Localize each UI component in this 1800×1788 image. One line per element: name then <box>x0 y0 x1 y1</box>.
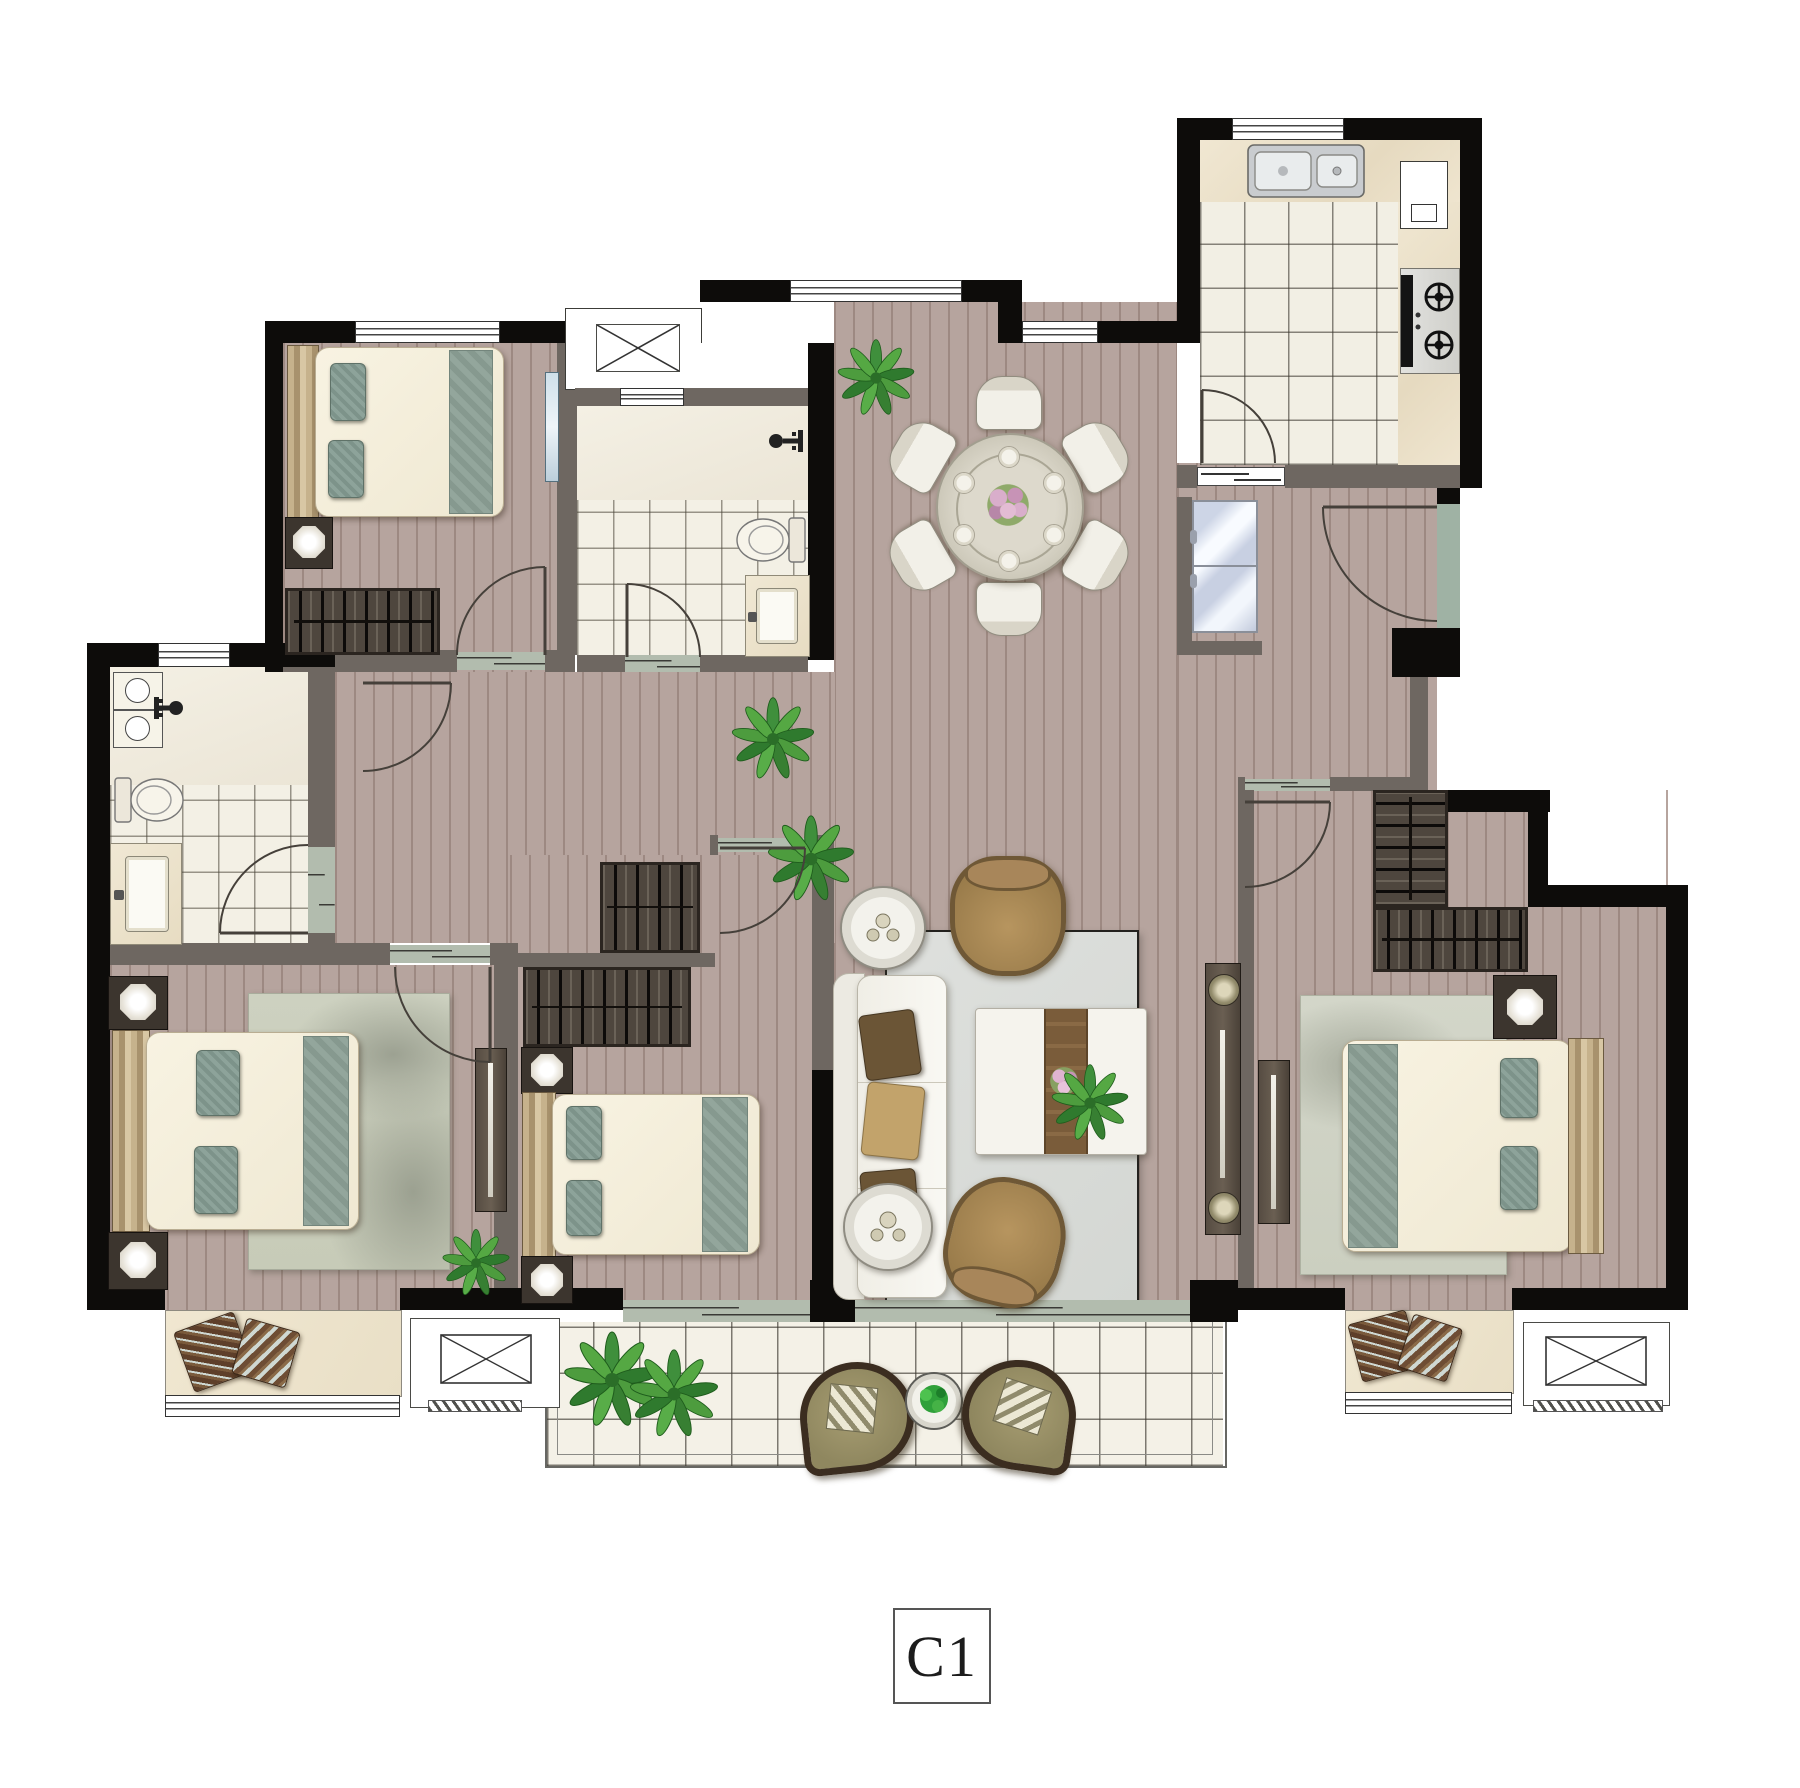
kitchen-sliding-door <box>1197 467 1285 486</box>
kitchen-double-sink <box>1247 144 1365 198</box>
bathroom-left-shower-faucet <box>150 695 190 721</box>
bed-pillow <box>1500 1146 1538 1210</box>
plant-bedroom-bottom-left <box>441 1228 511 1298</box>
bathroom-left-window <box>158 643 230 667</box>
bedroom-right-dresser <box>1258 1060 1290 1224</box>
plant-balcony <box>628 1348 720 1440</box>
wall <box>684 388 808 406</box>
floor-plan-canvas: C1 <box>0 0 1800 1788</box>
bed-headboard <box>112 1030 150 1232</box>
ac-platform-left-grille <box>428 1400 522 1412</box>
plant-hallway <box>730 696 816 782</box>
wall <box>1512 1288 1688 1310</box>
wall <box>575 388 620 406</box>
ac-platform-right <box>1523 1322 1670 1406</box>
armchair <box>950 856 1066 976</box>
nightstand <box>1493 975 1557 1039</box>
wall <box>1437 488 1460 504</box>
wall <box>1238 1288 1345 1310</box>
bed-pillow <box>194 1146 238 1214</box>
plant-dining <box>836 338 916 418</box>
bedroom-top-left-door-threshold <box>457 652 545 670</box>
bed-pillow <box>1500 1058 1538 1118</box>
wall <box>1177 641 1262 655</box>
kitchen-window <box>1232 118 1344 140</box>
bedroom-top-left-wardrobe <box>285 588 440 655</box>
wall <box>812 1070 834 1300</box>
unit-label: C1 <box>906 1623 978 1690</box>
dining-chair <box>976 376 1042 430</box>
bedroom-right-wardrobe-horizontal <box>1373 907 1528 972</box>
wall <box>577 655 625 672</box>
bedroom-middle-balcony-slider <box>623 1300 810 1322</box>
bed-headboard <box>522 1092 556 1257</box>
dining-window <box>790 280 962 302</box>
sofa-pillow <box>860 1081 925 1161</box>
bathroom-center-toilet <box>735 513 808 567</box>
wall <box>1410 677 1428 790</box>
bed-pillow <box>566 1180 602 1236</box>
balcony-side-table <box>905 1372 963 1430</box>
bathroom-left-toilet <box>112 773 185 827</box>
bathroom-left-threshold <box>308 847 335 933</box>
wall <box>510 953 715 967</box>
gas-stove <box>1400 268 1460 374</box>
bedroom-right-door-threshold <box>1245 779 1330 791</box>
wall <box>308 667 335 847</box>
wall <box>710 835 718 855</box>
wall-mirror <box>545 372 559 482</box>
wall <box>1238 777 1245 791</box>
bed-pillow <box>196 1050 240 1116</box>
nightstand <box>521 1256 573 1304</box>
hallway-closet <box>600 862 700 953</box>
nightstand <box>108 1232 168 1290</box>
wall <box>400 1288 623 1310</box>
wall <box>265 321 355 343</box>
kitchen-wall-cabinet <box>1400 161 1448 229</box>
bed-headboard <box>1568 1038 1604 1254</box>
refrigerator <box>1192 500 1258 633</box>
wall <box>1190 1280 1238 1322</box>
bedroom-bottom-left-dresser <box>475 1048 507 1212</box>
ac-platform-left <box>410 1318 560 1408</box>
bed-foot-runner <box>702 1097 748 1252</box>
wall <box>545 650 575 672</box>
plant-living <box>766 814 856 904</box>
wall <box>1548 885 1688 907</box>
nightstand <box>521 1047 573 1094</box>
place-setting <box>998 446 1020 468</box>
vent-shaft-x-symbol <box>596 324 680 372</box>
bathroom-center-threshold <box>625 655 700 672</box>
bathroom-center-vanity <box>745 575 810 657</box>
wall <box>500 321 575 343</box>
bathroom-center-window <box>620 388 684 406</box>
plant-corridor <box>1050 1063 1130 1143</box>
bed-foot-runner <box>303 1036 349 1226</box>
bed-pillow <box>328 440 364 498</box>
bedroom-bottom-left-door-threshold <box>390 945 490 963</box>
wall <box>1666 907 1688 1310</box>
bed-foot-runner <box>1348 1044 1398 1248</box>
unit-label-box: C1 <box>893 1608 991 1704</box>
entry-threshold <box>1437 504 1460 628</box>
bathroom-left-vanity <box>110 843 182 945</box>
bathroom-center-shower-faucet <box>762 428 808 454</box>
ac-platform-right-grille <box>1533 1400 1663 1412</box>
kitchen-floor <box>1200 202 1398 465</box>
place-setting <box>953 524 975 546</box>
outside-filler <box>700 343 808 388</box>
outside-notch <box>1548 790 1666 885</box>
wall <box>87 1288 165 1310</box>
place-setting <box>1043 472 1065 494</box>
wall <box>1177 118 1200 343</box>
wall <box>1460 118 1482 488</box>
wall <box>265 321 283 672</box>
bay-window-left <box>165 1395 400 1417</box>
sofa-pillow <box>858 1008 923 1081</box>
dining-window-2 <box>1022 321 1098 343</box>
bed-pillow <box>566 1106 602 1160</box>
place-setting <box>953 472 975 494</box>
tv-console <box>1205 963 1241 1235</box>
wall <box>700 655 808 672</box>
dining-centerpiece-flowers <box>984 481 1032 529</box>
wall <box>1528 790 1548 907</box>
nightstand <box>285 517 333 569</box>
wall <box>87 643 110 1310</box>
bedroom-right-wardrobe-vertical <box>1373 790 1448 907</box>
dining-chair <box>976 582 1042 636</box>
wall <box>700 280 790 302</box>
wall <box>1392 628 1460 677</box>
bed-pillow <box>330 363 366 421</box>
bed-foot-runner <box>449 350 493 514</box>
place-setting <box>1043 524 1065 546</box>
side-table <box>843 1183 933 1271</box>
wall <box>110 943 335 965</box>
wall <box>1285 465 1460 488</box>
bay-window-right <box>1345 1392 1512 1414</box>
place-setting <box>998 550 1020 572</box>
wall <box>335 943 390 965</box>
wall <box>1330 777 1410 791</box>
bedroom-top-left-window <box>355 321 500 343</box>
nightstand <box>108 976 168 1030</box>
wall <box>808 343 834 660</box>
wall <box>1177 465 1197 488</box>
bedroom-middle-wardrobe <box>523 967 691 1047</box>
